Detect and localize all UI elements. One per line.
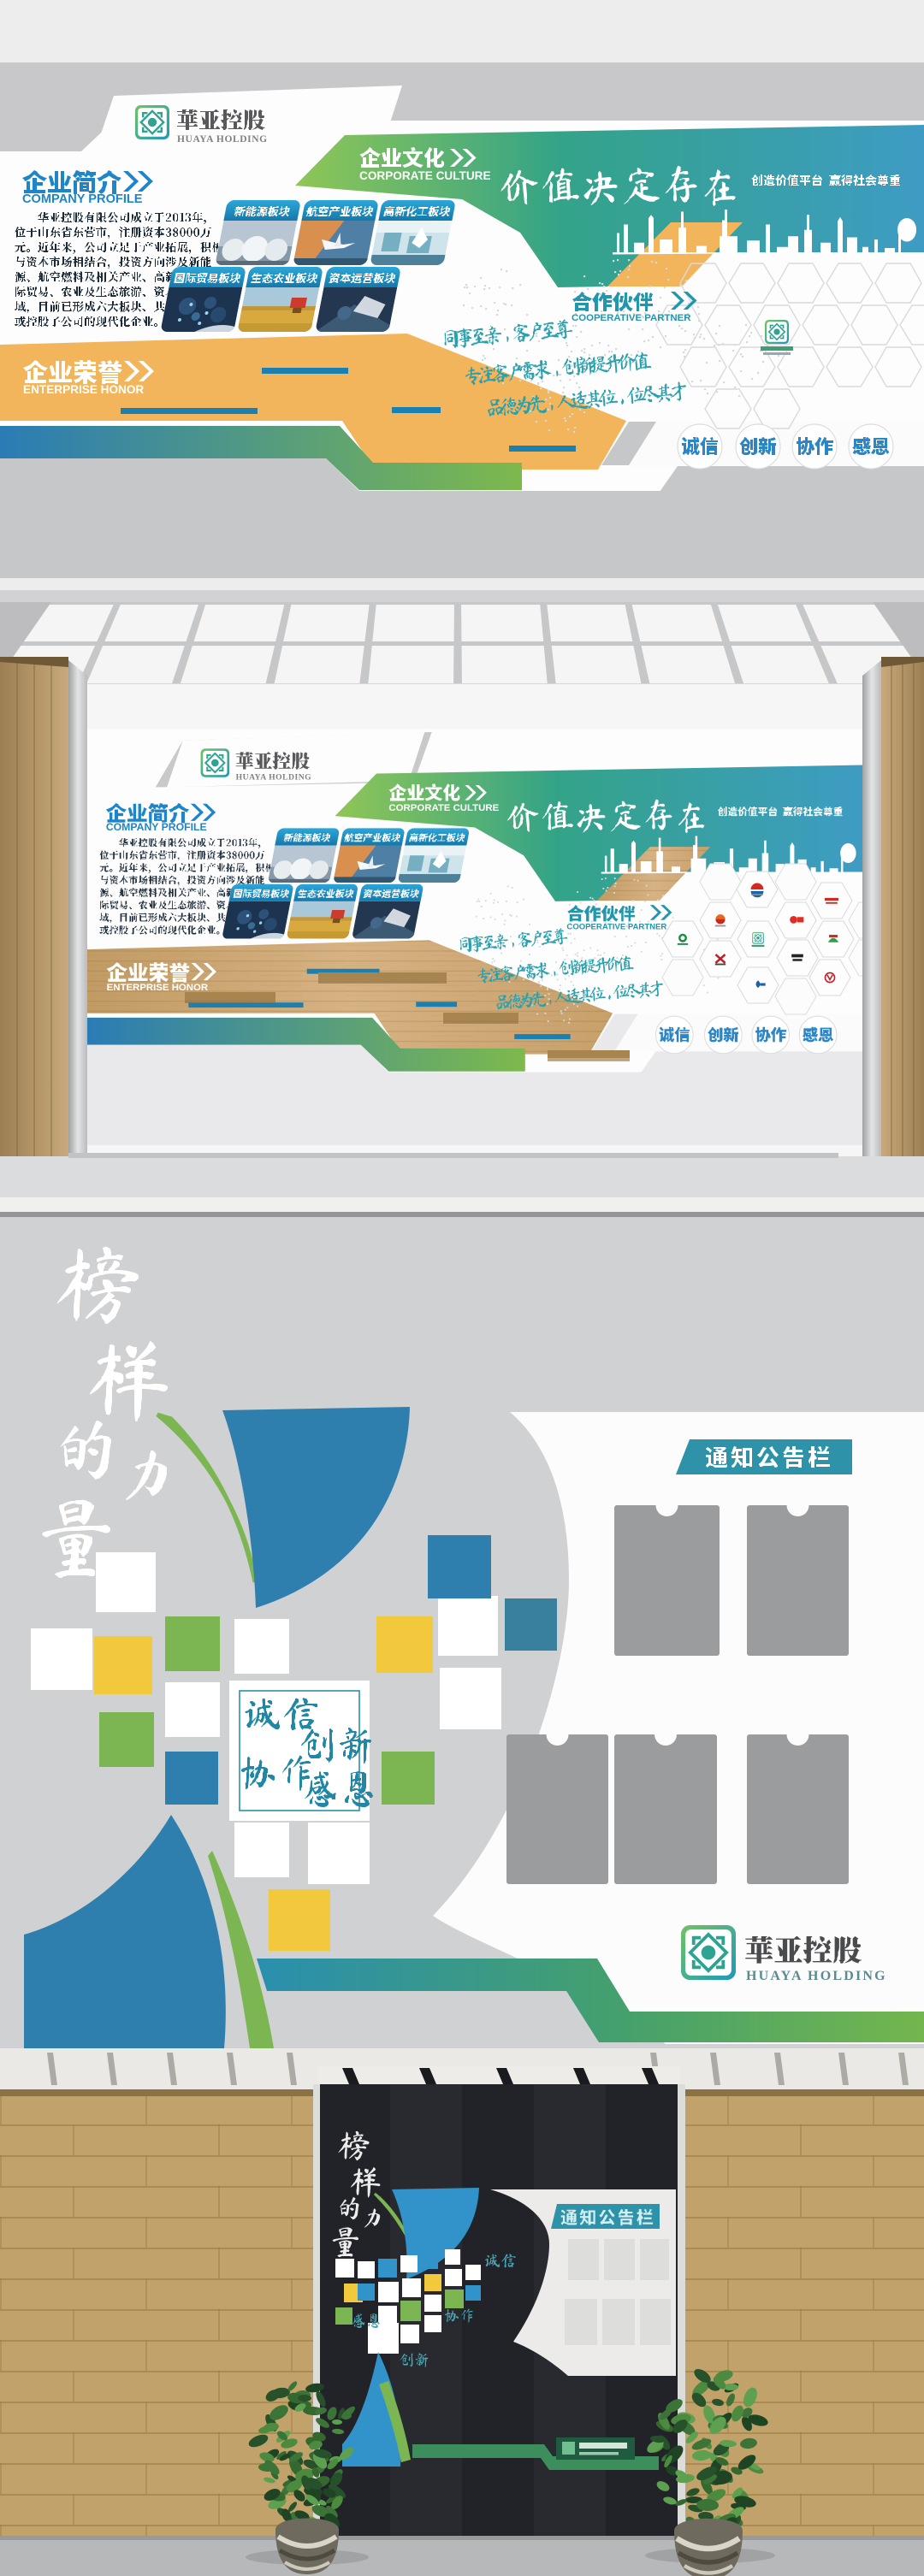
- svg-text:HUAYA HOLDING: HUAYA HOLDING: [177, 134, 268, 145]
- svg-text:HUAYA HOLDING: HUAYA HOLDING: [236, 772, 311, 782]
- svg-text:COOPERATIVE PARTNER: COOPERATIVE PARTNER: [572, 313, 690, 323]
- svg-text:COMPANY PROFILE: COMPANY PROFILE: [22, 192, 143, 206]
- svg-text:COOPERATIVE PARTNER: COOPERATIVE PARTNER: [566, 923, 666, 932]
- svg-text:ENTERPRISE HONOR: ENTERPRISE HONOR: [23, 383, 144, 396]
- svg-text:CORPORATE CULTURE: CORPORATE CULTURE: [359, 169, 491, 182]
- svg-text:HUAYA HOLDING: HUAYA HOLDING: [746, 1969, 887, 1983]
- svg-text:COMPANY PROFILE: COMPANY PROFILE: [106, 821, 207, 833]
- svg-text:CORPORATE CULTURE: CORPORATE CULTURE: [388, 803, 499, 813]
- svg-text:ENTERPRISE HONOR: ENTERPRISE HONOR: [107, 983, 209, 993]
